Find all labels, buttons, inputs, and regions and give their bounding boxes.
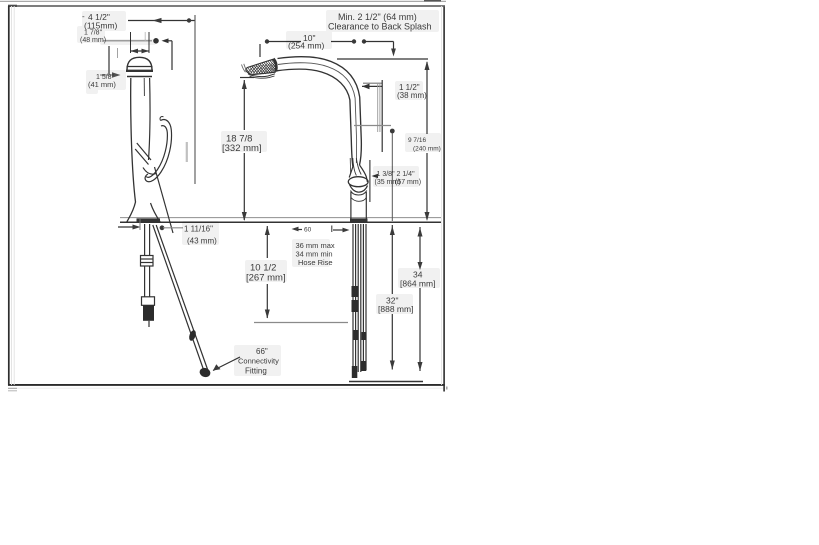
svg-text:Hose Rise: Hose Rise bbox=[298, 258, 333, 267]
svg-text:[267 mm]: [267 mm] bbox=[246, 273, 286, 284]
svg-text:Min. 2 1/2" (64 mm): Min. 2 1/2" (64 mm) bbox=[338, 12, 417, 22]
svg-text:1 11/16": 1 11/16" bbox=[184, 225, 213, 234]
svg-text:66": 66" bbox=[256, 347, 268, 356]
svg-text:[888 mm]: [888 mm] bbox=[378, 304, 413, 314]
svg-text:(43 mm): (43 mm) bbox=[187, 237, 217, 246]
svg-text:[332 mm]: [332 mm] bbox=[222, 143, 262, 154]
svg-text:1 3/8": 1 3/8" bbox=[377, 171, 396, 178]
svg-text:Connectivity: Connectivity bbox=[238, 357, 279, 366]
svg-text:2 1/4": 2 1/4" bbox=[397, 171, 416, 178]
svg-text:(41 mm): (41 mm) bbox=[88, 80, 116, 89]
svg-text:60: 60 bbox=[304, 227, 312, 234]
svg-text:[864 mm]: [864 mm] bbox=[400, 279, 435, 289]
svg-text:(240 mm): (240 mm) bbox=[413, 146, 441, 153]
svg-text:(48 mm): (48 mm) bbox=[80, 37, 106, 44]
svg-text:9 7/16: 9 7/16 bbox=[408, 137, 426, 144]
svg-text:Clearance to Back Splash: Clearance to Back Splash bbox=[328, 21, 432, 31]
svg-text:Fitting: Fitting bbox=[245, 367, 267, 376]
svg-text:(38 mm): (38 mm) bbox=[397, 91, 427, 100]
svg-text:(254 mm): (254 mm) bbox=[288, 41, 325, 51]
svg-text:1 7/8": 1 7/8" bbox=[84, 30, 103, 37]
svg-text:(57 mm): (57 mm) bbox=[395, 179, 421, 186]
